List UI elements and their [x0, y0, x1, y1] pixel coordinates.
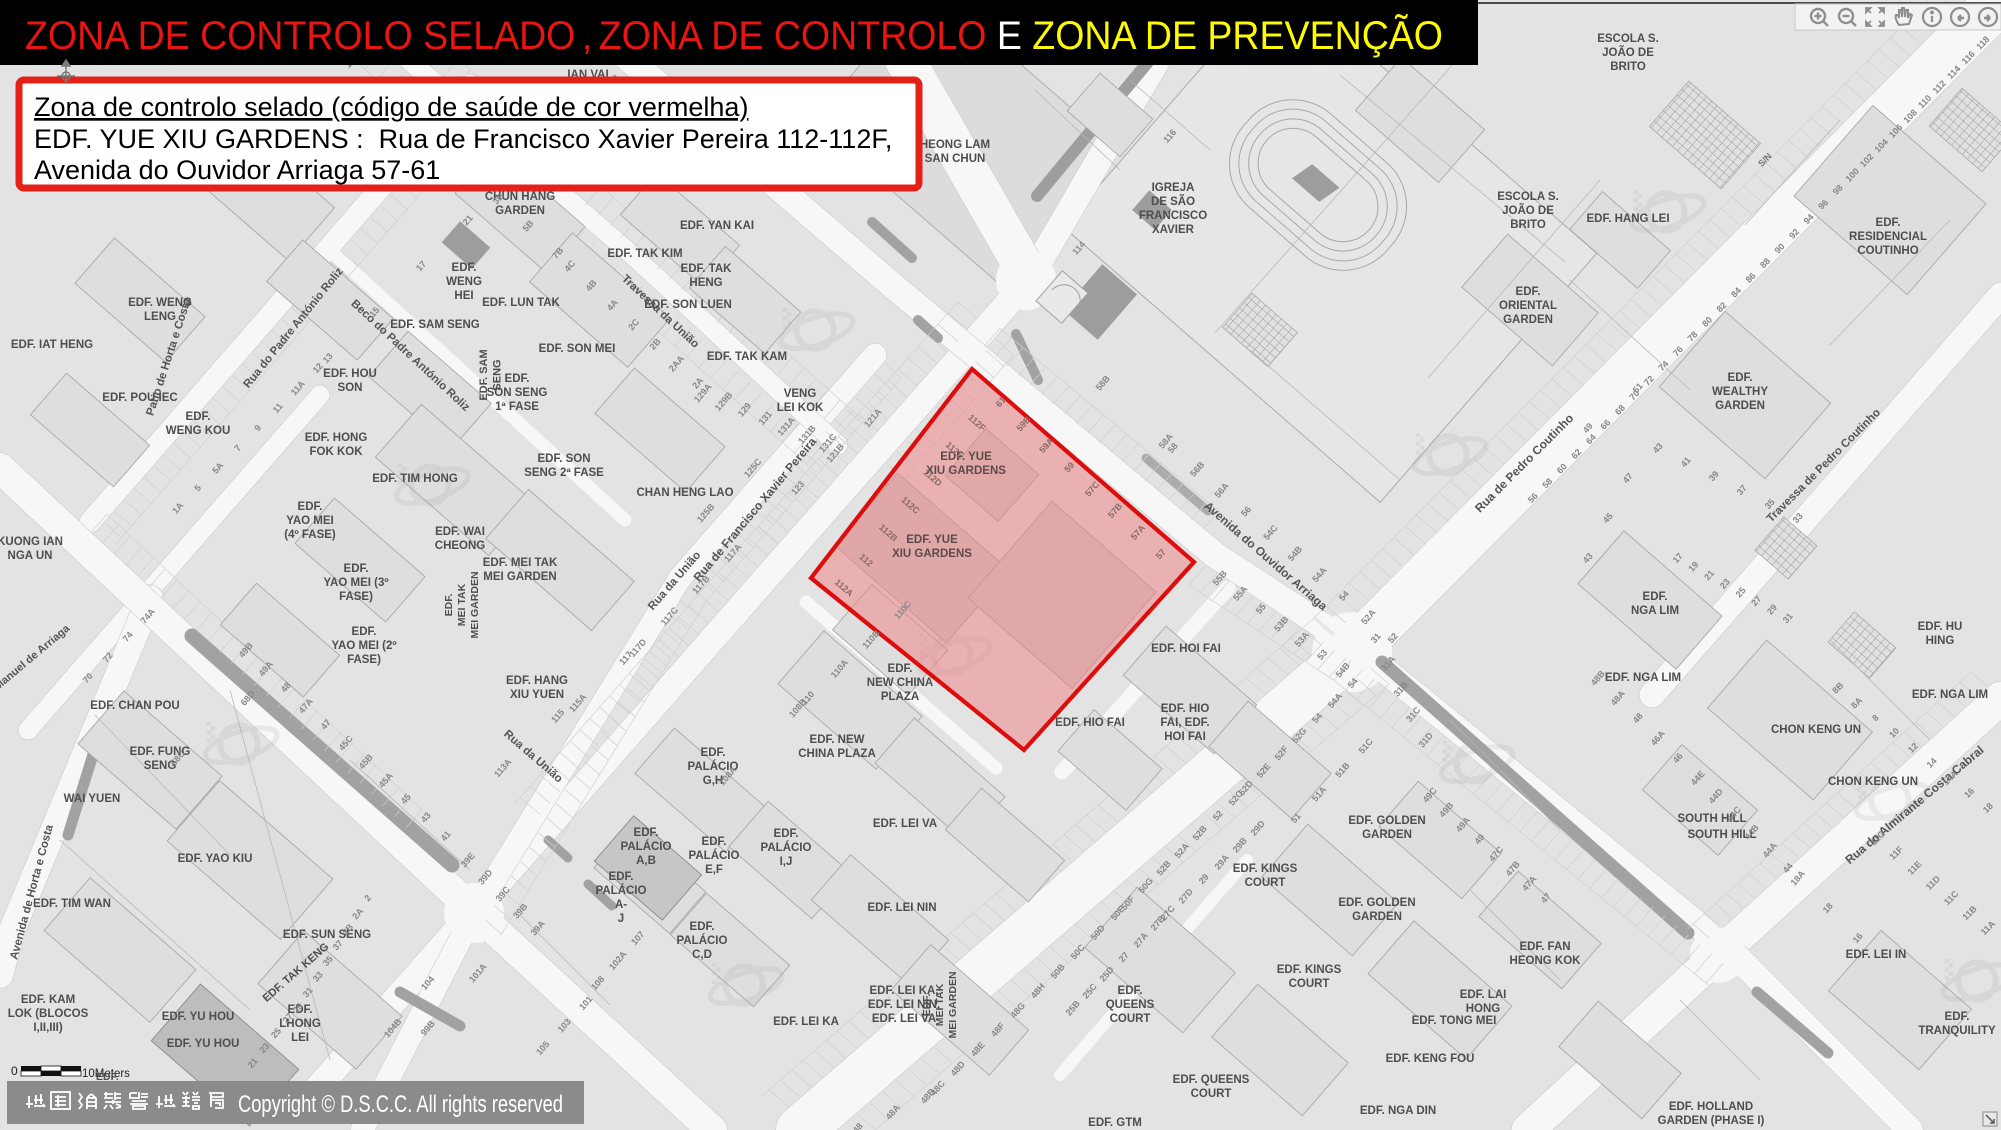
svg-text:A-: A- [615, 899, 627, 911]
svg-text:COUTINHO: COUTINHO [1857, 245, 1918, 257]
svg-text:MEI TAK: MEI TAK [456, 583, 468, 626]
svg-text:EDF. NGA DIN: EDF. NGA DIN [1360, 1105, 1436, 1117]
svg-text:EDF. IAT HENG: EDF. IAT HENG [11, 339, 93, 351]
svg-text:HOI FAI: HOI FAI [1164, 731, 1206, 743]
svg-text:EDF.: EDF. [505, 373, 530, 385]
svg-text:CHON KENG UN: CHON KENG UN [1828, 776, 1918, 788]
svg-text:PLAZA: PLAZA [881, 691, 919, 703]
svg-text:EDF. HIO FAI: EDF. HIO FAI [1055, 717, 1125, 729]
svg-text:IGREJA: IGREJA [1152, 182, 1195, 194]
svg-text:0: 0 [11, 1064, 18, 1078]
svg-text:PALÁCIO: PALÁCIO [596, 884, 647, 897]
svg-text:EDF. GTM: EDF. GTM [1088, 1117, 1142, 1129]
svg-text:CHINA PLAZA: CHINA PLAZA [798, 748, 876, 760]
svg-text:EDF.: EDF. [702, 836, 727, 848]
svg-text:JOÃO DE: JOÃO DE [1502, 204, 1554, 217]
svg-text:FOK KOK: FOK KOK [309, 446, 363, 458]
svg-text:WAI YUEN: WAI YUEN [64, 793, 121, 805]
svg-text:Zona de controlo selado (códig: Zona de controlo selado (código de saúde… [34, 92, 748, 122]
svg-text:HING: HING [1926, 635, 1955, 647]
svg-text:EDF. TAK KIM: EDF. TAK KIM [607, 248, 682, 260]
svg-text:CHEONG: CHEONG [435, 540, 486, 552]
svg-text:TRANQUILITY: TRANQUILITY [1918, 1025, 1996, 1037]
svg-text:EDF. TAK: EDF. TAK [681, 263, 733, 275]
svg-text:EDF. NEW: EDF. NEW [810, 734, 865, 746]
svg-text:EDF.: EDF. [186, 411, 211, 423]
svg-text:VENG: VENG [784, 388, 817, 400]
svg-text:EDF. SUN SENG: EDF. SUN SENG [283, 929, 371, 941]
svg-text:LEI KOK: LEI KOK [777, 402, 824, 414]
svg-text:EDF. KINGS: EDF. KINGS [1233, 863, 1298, 875]
svg-text:FAI, EDF.: FAI, EDF. [1160, 717, 1209, 729]
svg-text:HEI: HEI [454, 290, 473, 302]
svg-text:EDF.: EDF. [888, 663, 913, 675]
svg-text:EDF. HIO: EDF. HIO [1161, 703, 1210, 715]
svg-text:I,J: I,J [780, 856, 793, 868]
svg-text:EDF.: EDF. [690, 921, 715, 933]
svg-text:EDF.: EDF. [298, 501, 323, 513]
svg-text:CHON KENG UN: CHON KENG UN [1771, 724, 1861, 736]
svg-text:EDF.: EDF. [352, 626, 377, 638]
svg-text:EDF.: EDF. [609, 871, 634, 883]
svg-text:FASE): FASE) [347, 654, 381, 666]
svg-text:EDF. HOLLAND: EDF. HOLLAND [1669, 1101, 1753, 1113]
svg-text:LEI: LEI [291, 1032, 309, 1044]
svg-text:CHAN HENG LAO: CHAN HENG LAO [636, 487, 733, 499]
svg-text:EDF. QUEENS: EDF. QUEENS [1173, 1074, 1250, 1086]
svg-text:EDF. LEI KA: EDF. LEI KA [773, 1016, 839, 1028]
svg-text:YAO MEI (2º: YAO MEI (2º [331, 640, 396, 652]
svg-text:EDF. HONG: EDF. HONG [305, 432, 368, 444]
svg-text:EDF. TAK KAM: EDF. TAK KAM [707, 351, 787, 363]
svg-text:XIU YUEN: XIU YUEN [510, 689, 564, 701]
svg-text:EDF. GOLDEN: EDF. GOLDEN [1338, 897, 1415, 909]
svg-text:EDF. LAI: EDF. LAI [1460, 989, 1507, 1001]
svg-text:WENG: WENG [446, 276, 482, 288]
svg-text:HENG: HENG [689, 277, 722, 289]
svg-text:EDF. KENG FOU: EDF. KENG FOU [1386, 1053, 1475, 1065]
svg-text:ESCOLA S.: ESCOLA S. [1497, 191, 1559, 203]
svg-text:EDF.: EDF. [701, 747, 726, 759]
svg-text:DE SÃO: DE SÃO [1151, 195, 1195, 208]
svg-text:EDF. POU IEC: EDF. POU IEC [102, 392, 177, 404]
svg-text:(4º FASE): (4º FASE) [284, 529, 336, 541]
svg-text:KUONG IAN: KUONG IAN [0, 536, 63, 548]
svg-text:SENG: SENG [492, 359, 504, 390]
svg-text:HEONG LAM: HEONG LAM [920, 139, 990, 151]
svg-text:MEI GARDEN: MEI GARDEN [483, 571, 556, 583]
svg-text:Copyright © D.S.C.C. All right: Copyright © D.S.C.C. All rights reserved [238, 1091, 563, 1118]
svg-text:1ª FASE: 1ª FASE [495, 401, 539, 413]
svg-text:LOK (BLOCOS: LOK (BLOCOS [8, 1008, 89, 1020]
svg-text:BRITO: BRITO [1610, 61, 1646, 73]
svg-text:EDF. CHAN POU: EDF. CHAN POU [90, 700, 179, 712]
svg-text:EDF. WENG: EDF. WENG [128, 297, 192, 309]
svg-text:ESCOLA S.: ESCOLA S. [1597, 33, 1659, 45]
svg-text:EDF. LEI VA: EDF. LEI VA [873, 818, 937, 830]
svg-text:EDF. YU HOU: EDF. YU HOU [162, 1011, 235, 1023]
svg-text:NEW CHINA: NEW CHINA [867, 677, 933, 689]
svg-text:EDF. YUE XIU GARDENS : Rua de: EDF. YUE XIU GARDENS : Rua de Francisco … [34, 124, 892, 154]
svg-text:ZONA DE CONTROLO SELADO ‚ ZONA: ZONA DE CONTROLO SELADO ‚ ZONA DE CONTRO… [25, 13, 1443, 58]
svg-text:WENG KOU: WENG KOU [166, 425, 231, 437]
svg-text:HEONG KOK: HEONG KOK [1510, 955, 1582, 967]
svg-text:EDF.: EDF. [443, 594, 455, 617]
svg-text:EDF.: EDF. [1516, 286, 1541, 298]
svg-text:EDF. TIM WAN: EDF. TIM WAN [33, 898, 111, 910]
svg-text:EDF. MEI TAK: EDF. MEI TAK [483, 557, 558, 569]
svg-text:YAO MEI (3º: YAO MEI (3º [323, 577, 388, 589]
svg-text:COURT: COURT [1289, 978, 1330, 990]
svg-text:XIU GARDENS: XIU GARDENS [892, 548, 972, 560]
svg-text:ORIENTAL: ORIENTAL [1499, 300, 1557, 312]
svg-text:EDF.: EDF. [1118, 985, 1143, 997]
svg-text:SAN CHUN: SAN CHUN [925, 153, 986, 165]
svg-text:GARDEN: GARDEN [1362, 829, 1412, 841]
svg-text:EDF. HOU: EDF. HOU [323, 368, 377, 380]
svg-text:GARDEN: GARDEN [495, 205, 545, 217]
svg-text:PALÁCIO: PALÁCIO [761, 841, 812, 854]
svg-text:EDF. SAM SENG: EDF. SAM SENG [390, 319, 480, 331]
svg-text:COURT: COURT [1110, 1013, 1151, 1025]
svg-text:EDF. KINGS: EDF. KINGS [1277, 964, 1342, 976]
svg-text:EDF.: EDF. [921, 994, 933, 1017]
svg-text:NGA UN: NGA UN [8, 550, 53, 562]
svg-text:MEI TAK: MEI TAK [934, 983, 946, 1026]
svg-text:HONG: HONG [1466, 1003, 1501, 1015]
svg-text:BRITO: BRITO [1510, 219, 1546, 231]
svg-text:COURT: COURT [1245, 877, 1286, 889]
svg-text:PALÁCIO: PALÁCIO [677, 934, 728, 947]
svg-text:EDF. SON MEI: EDF. SON MEI [539, 343, 616, 355]
svg-text:EDF. YU HOU: EDF. YU HOU [167, 1038, 240, 1050]
svg-text:GARDEN: GARDEN [1503, 314, 1553, 326]
svg-text:GARDEN: GARDEN [1715, 400, 1765, 412]
svg-text:EDF. WAI: EDF. WAI [435, 526, 485, 538]
svg-text:E,F: E,F [705, 864, 723, 876]
svg-text:EDF. TIM HONG: EDF. TIM HONG [372, 473, 458, 485]
svg-text:EDF. KAM: EDF. KAM [21, 994, 75, 1006]
svg-text:SENG 2ª FASE: SENG 2ª FASE [524, 467, 604, 479]
svg-text:J: J [618, 913, 624, 925]
svg-text:EDF. HANG: EDF. HANG [506, 675, 568, 687]
svg-text:EDF. LEI NIN: EDF. LEI NIN [867, 902, 936, 914]
svg-text:YAO MEI: YAO MEI [286, 515, 334, 527]
svg-text:EDF. GOLDEN: EDF. GOLDEN [1348, 815, 1425, 827]
svg-text:EDF.: EDF. [1876, 217, 1901, 229]
svg-text:SON: SON [338, 382, 363, 394]
svg-text:EDF.: EDF. [1643, 591, 1668, 603]
svg-text:WEALTHY: WEALTHY [1712, 386, 1768, 398]
svg-text:GARDEN (PHASE I): GARDEN (PHASE I) [1658, 1115, 1765, 1127]
svg-text:COURT: COURT [1191, 1088, 1232, 1100]
svg-text:EDF. NGA LIM: EDF. NGA LIM [1605, 672, 1681, 684]
svg-text:PALÁCIO: PALÁCIO [621, 840, 672, 853]
svg-text:EDF. LUN TAK: EDF. LUN TAK [482, 297, 560, 309]
svg-text:JOÃO DE: JOÃO DE [1602, 46, 1654, 59]
svg-text:A,B: A,B [636, 855, 656, 867]
svg-text:QUEENS: QUEENS [1106, 999, 1155, 1011]
svg-text:EDF.: EDF. [1728, 372, 1753, 384]
svg-text:EDF. TONG MEI: EDF. TONG MEI [1412, 1015, 1497, 1027]
svg-text:EDF. LEI IN: EDF. LEI IN [1846, 949, 1907, 961]
svg-text:EDF. YAN KAI: EDF. YAN KAI [680, 220, 754, 232]
svg-text:EDF. HU: EDF. HU [1918, 621, 1963, 633]
svg-text:MEI GARDEN: MEI GARDEN [947, 971, 959, 1038]
svg-text:EDF. FAN: EDF. FAN [1519, 941, 1570, 953]
svg-text:EDF. SON LUEN: EDF. SON LUEN [644, 299, 732, 311]
svg-text:Avenida do Ouvidor Arriaga 57-: Avenida do Ouvidor Arriaga 57-61 [34, 155, 440, 185]
svg-text:EDF. YUE: EDF. YUE [906, 534, 958, 546]
svg-text:EDF. YAO KIU: EDF. YAO KIU [178, 853, 253, 865]
svg-text:EDF. HOI FAI: EDF. HOI FAI [1151, 643, 1221, 655]
svg-text:NGA LIM: NGA LIM [1631, 605, 1679, 617]
svg-text:EDF.: EDF. [774, 828, 799, 840]
svg-text:FRANCISCO: FRANCISCO [1139, 210, 1207, 222]
svg-text:EDF. SON: EDF. SON [537, 453, 590, 465]
svg-text:XAVIER: XAVIER [1152, 224, 1195, 236]
svg-text:MEI GARDEN: MEI GARDEN [469, 571, 481, 638]
svg-text:PALÁCIO: PALÁCIO [689, 849, 740, 862]
svg-text:EDF.: EDF. [344, 563, 369, 575]
svg-text:I,II,III): I,II,III) [33, 1022, 63, 1034]
svg-text:EDF.: EDF. [634, 827, 659, 839]
svg-text:FASE): FASE) [339, 591, 373, 603]
svg-text:LENG: LENG [144, 311, 176, 323]
svg-text:EDF. NGA LIM: EDF. NGA LIM [1912, 689, 1988, 701]
svg-text:EDF.: EDF. [1945, 1011, 1970, 1023]
svg-text:RESIDENCIAL: RESIDENCIAL [1849, 231, 1927, 243]
svg-text:EDF. HANG LEI: EDF. HANG LEI [1586, 213, 1669, 225]
svg-text:EDF.: EDF. [452, 262, 477, 274]
svg-text:C,D: C,D [692, 949, 712, 961]
svg-text:EDF. SAM: EDF. SAM [478, 349, 490, 400]
svg-text:GARDEN: GARDEN [1352, 911, 1402, 923]
